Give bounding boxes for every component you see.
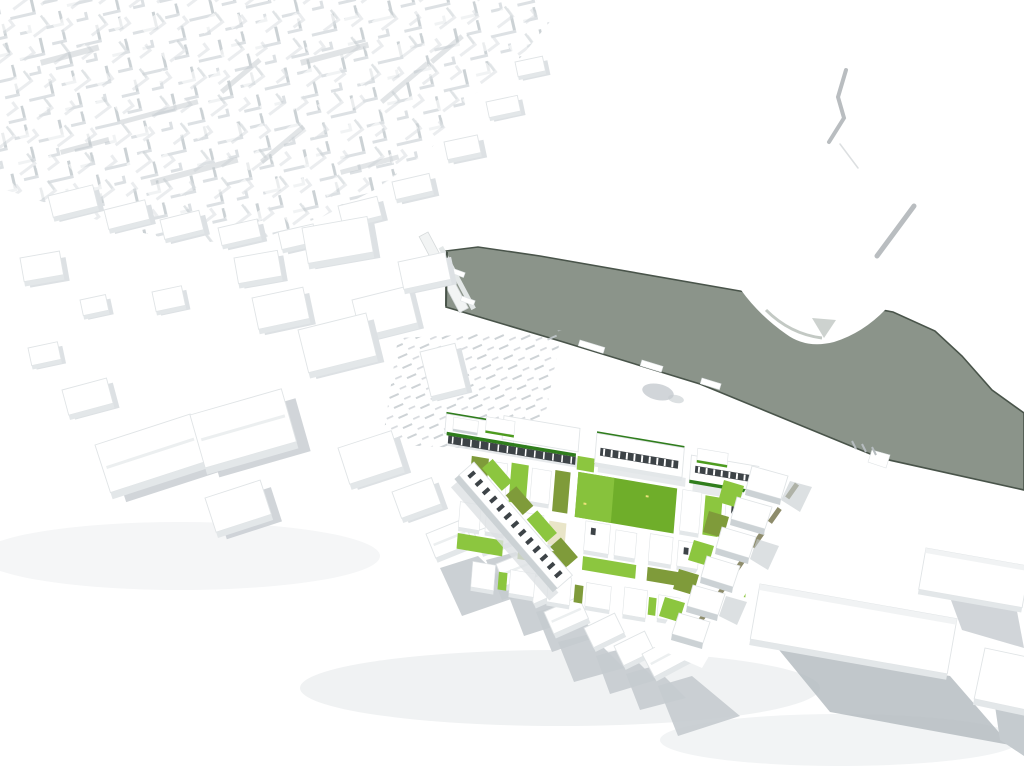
building-block-gabled: [190, 386, 311, 481]
building-block: [302, 215, 380, 270]
building-block: [80, 294, 114, 321]
building-block: [234, 249, 288, 289]
building-block: [28, 341, 66, 371]
massing-model-render: [0, 0, 1024, 768]
site-court-lawn-small: [577, 456, 595, 473]
building-block: [20, 250, 70, 288]
embankment-lines: [829, 70, 914, 256]
warehouse-slab: [973, 648, 1024, 716]
building-block: [392, 476, 448, 525]
building-block: [152, 285, 190, 317]
building-block: [62, 377, 120, 421]
warehouse-slab: [918, 548, 1024, 613]
model-canvas: [0, 0, 1024, 768]
